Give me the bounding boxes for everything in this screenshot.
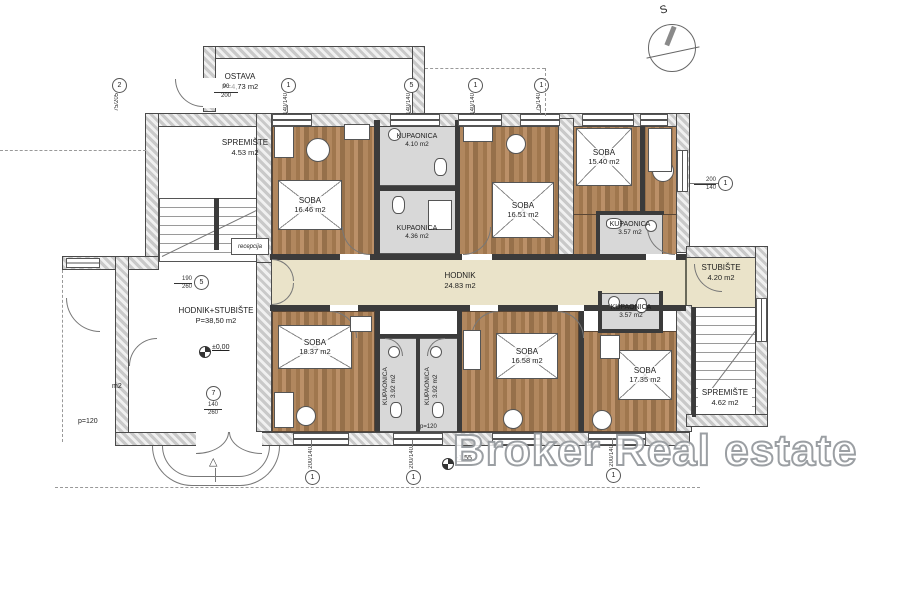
mark-num: 7	[212, 390, 216, 397]
room-label-kup5: KUPAONICA 3.92 m2	[424, 348, 440, 424]
dimension-text: 75/140	[536, 93, 542, 111]
mark-num: 1	[724, 180, 728, 187]
door-opening-soba3	[646, 254, 676, 260]
window	[293, 433, 349, 445]
room-area-soba1: 16.46 m2	[292, 205, 327, 214]
dimension-text: 200/140	[609, 445, 615, 467]
room-label-kup2: KUPAONICA 4.36 m2	[380, 224, 454, 242]
dimension-text: 140/140	[470, 93, 476, 115]
kup5-name: KUPAONICA	[424, 348, 432, 424]
floor-plan: SOBA 16.46 m2 SOBA 16.51 m2 SOBA 15.40 m…	[0, 0, 900, 600]
dim-h: 260	[204, 409, 222, 417]
kup1-name: KUPAONICA	[380, 132, 454, 141]
kup5-area: 3.92 m2	[432, 348, 440, 424]
stair-spine-left	[214, 198, 219, 250]
door-arc-hodnik-west	[129, 338, 157, 366]
toilet	[392, 196, 405, 214]
spremiste-l-name: SPREMIŠTE	[190, 138, 300, 148]
mark-num: 2	[118, 82, 122, 89]
kup6-name: KUPAONICA	[600, 303, 662, 312]
wood-floor-soba3-strip	[573, 214, 597, 257]
partition-kup-soba2	[455, 120, 460, 256]
window	[492, 433, 542, 445]
hodnik-area: 24.83 m2	[400, 281, 520, 291]
table-round	[296, 406, 316, 426]
wall-right-lower	[676, 305, 692, 432]
wall-left-lower	[115, 256, 129, 446]
window	[588, 433, 646, 445]
wall-soba2-soba3	[558, 118, 574, 258]
dimension-text: 140/140	[406, 93, 412, 115]
dimension-text: 200/140	[409, 447, 415, 469]
mark-num: 5	[410, 82, 414, 89]
wall-tower-bottom	[686, 414, 768, 427]
wardrobe	[463, 126, 493, 142]
entrance-marker-stem	[215, 468, 216, 482]
mark-num: 5	[200, 279, 204, 286]
bed-soba4: SOBA 18.37 m2	[278, 325, 352, 369]
window	[66, 258, 100, 268]
room-area-soba4: 18.37 m2	[297, 347, 332, 356]
room-label-kup4: KUPAONICA 3.92 m2	[382, 348, 398, 424]
level-symbol	[442, 458, 454, 470]
leader-line	[540, 105, 541, 114]
room-label-soba6: SOBA	[632, 366, 658, 376]
partition-kup45-top	[379, 334, 457, 338]
dim-h: 260	[174, 283, 192, 291]
door-dim-ostava: 90 200	[214, 84, 238, 101]
dim-h: 140	[694, 184, 716, 192]
wardrobe	[463, 330, 481, 370]
mark-num: 1	[287, 82, 291, 89]
door-dim-h: 200	[214, 92, 238, 101]
table-round	[503, 409, 523, 429]
window	[393, 433, 443, 445]
mark-num: 1	[540, 82, 544, 89]
window	[272, 114, 312, 126]
dimension-mark-circle: 1	[718, 176, 733, 191]
mark-num: 1	[412, 474, 416, 481]
level-text-minus: -1,55	[456, 455, 472, 462]
door-opening-soba4	[330, 305, 358, 311]
wardrobe	[648, 128, 672, 172]
leader-line	[412, 440, 413, 447]
leader-line	[690, 183, 718, 184]
dashed-line	[545, 68, 546, 116]
table-round	[592, 410, 612, 430]
kup2-area: 4.36 m2	[380, 233, 454, 241]
leader-line	[311, 440, 312, 447]
dashed-property-line	[55, 487, 700, 488]
partition-soba4-kup	[375, 311, 380, 432]
room-label-kup1: KUPAONICA 4.10 m2	[380, 132, 454, 150]
dimension-mark-circle: 7	[206, 386, 221, 401]
stubiste-area: 4.20 m2	[690, 273, 752, 283]
dimension-text: 200 140	[694, 177, 716, 192]
dimension-text: 140 260	[204, 402, 222, 417]
dashed-line	[425, 68, 545, 69]
window	[458, 114, 502, 126]
dimension-mark-circle: 5	[404, 78, 419, 93]
partition-kup6-bottom	[598, 329, 662, 333]
mark-num: 1	[474, 82, 478, 89]
dimension-mark-circle: 5	[194, 275, 209, 290]
reception-desk: recepcija	[231, 238, 269, 255]
partition-kup1-kup2	[379, 186, 455, 191]
level-text-zero: ±0,00	[212, 344, 229, 351]
dimension-mark-circle: 2	[112, 78, 127, 93]
room-label-kup3: KUPAONICA 3.57 m2	[598, 220, 662, 238]
window	[677, 150, 688, 192]
door-dim-w: 90	[214, 84, 238, 92]
door-opening-soba5	[470, 305, 498, 311]
dimension-text: 140/140	[283, 93, 289, 115]
room-label-kup6: KUPAONICA 3.57 m2	[600, 303, 662, 321]
partition-kup-soba5	[457, 311, 462, 432]
kup3-name: KUPAONICA	[598, 220, 662, 229]
spremiste-r-name: SPREMIŠTE	[698, 388, 752, 398]
room-label-soba4: SOBA	[302, 338, 328, 348]
spremiste-r-area: 4.62 m2	[698, 398, 752, 408]
kup6-area: 3.57 m2	[600, 312, 662, 320]
dimension-mark-circle: 1	[305, 470, 320, 485]
dim-w: 140	[204, 402, 222, 409]
window	[640, 114, 668, 126]
dimension-text: 75/205	[114, 93, 120, 111]
room-area-soba5: 16.58 m2	[509, 356, 544, 365]
north-arrow: S	[642, 4, 706, 76]
bed-soba3: SOBA 15.40 m2	[576, 128, 632, 186]
dimension-mark-circle: 1	[406, 470, 421, 485]
parapet-note-left: p=120	[78, 418, 98, 425]
table-round	[306, 138, 330, 162]
hodnik-name: HODNIK	[400, 271, 520, 281]
leader-line	[410, 105, 411, 114]
room-label-spremiste-right: SPREMIŠTE 4.62 m2	[698, 388, 752, 408]
dimension-text: 200/140	[308, 447, 314, 469]
kup4-name: KUPAONICA	[382, 348, 390, 424]
partition-soba3-closet	[640, 120, 645, 213]
hodnik-stubiste-name: HODNIK+STUBIŠTE	[155, 306, 277, 316]
dashed-line	[62, 270, 63, 442]
room-area-soba6: 17.35 m2	[627, 375, 662, 384]
bed-soba1: SOBA 16.46 m2	[278, 180, 342, 230]
leader-line	[474, 105, 475, 114]
hodnik-stubiste-area: P=38,50 m2	[155, 316, 277, 326]
stair-spine-right	[692, 307, 696, 417]
wall-hodnik-soba4	[256, 262, 272, 432]
dashed-line	[0, 150, 146, 151]
wall-left-upper	[145, 113, 159, 265]
door-opening-soba1	[340, 254, 370, 260]
room-area-soba3: 15.40 m2	[586, 157, 621, 166]
bed-soba5: SOBA 16.58 m2	[496, 333, 558, 379]
entrance-marker-icon: △	[209, 455, 217, 468]
bed-soba2: SOBA 16.51 m2	[492, 182, 554, 238]
dimension-mark-circle: 1	[281, 78, 296, 93]
room-area-soba2: 16.51 m2	[505, 210, 540, 219]
room-label-spremiste-left: SPREMIŠTE 4.53 m2	[190, 138, 300, 158]
kup1-area: 4.10 m2	[380, 141, 454, 149]
dimension-text: 190 260	[174, 276, 192, 291]
wardrobe	[274, 392, 294, 428]
room-label-soba3: SOBA	[591, 148, 617, 158]
partition-kup3-top	[596, 211, 664, 215]
room-label-soba1: SOBA	[297, 196, 323, 206]
dimension-mark-circle: 1	[534, 78, 549, 93]
dimension-mark-circle: 1	[606, 468, 621, 483]
room-label-soba5: SOBA	[514, 347, 540, 357]
door-opening-soba6	[558, 305, 584, 311]
stubiste-name: STUBIŠTE	[690, 263, 752, 273]
room-label-recepcija: recepcija	[238, 244, 262, 250]
room-label-stubiste: STUBIŠTE 4.20 m2	[690, 263, 752, 283]
mark-num: 1	[311, 474, 315, 481]
mark-num: 1	[612, 472, 616, 479]
north-label: S	[659, 3, 669, 16]
window	[756, 298, 767, 342]
table-round	[506, 134, 526, 154]
window	[582, 114, 634, 126]
toilet	[434, 158, 447, 176]
kup2-name: KUPAONICA	[380, 224, 454, 233]
cutoff-label-fragment: m2	[112, 383, 122, 390]
door-opening-soba2	[462, 254, 492, 260]
kup3-area: 3.57 m2	[598, 229, 662, 237]
door-arc-porch	[66, 298, 100, 332]
dimension-mark-circle: 1	[468, 78, 483, 93]
window	[390, 114, 440, 126]
dim-w: 190	[174, 276, 192, 283]
parapet-note-mid: p=120	[420, 424, 437, 430]
wardrobe	[344, 124, 370, 140]
kup4-area: 3.92 m2	[390, 348, 398, 424]
wardrobe	[350, 316, 372, 332]
level-symbol	[199, 346, 211, 358]
bed-soba6: SOBA 17.35 m2	[618, 350, 672, 400]
spremiste-l-area: 4.53 m2	[190, 148, 300, 158]
room-label-hodnik: HODNIK 24.83 m2	[400, 271, 520, 291]
wall-ostava-top	[203, 46, 425, 59]
room-label-soba2: SOBA	[510, 201, 536, 211]
window	[520, 114, 560, 126]
wardrobe	[600, 335, 620, 359]
leader-line	[612, 438, 613, 445]
room-label-hodnik-stubiste: HODNIK+STUBIŠTE P=38,50 m2	[155, 306, 277, 326]
leader-line	[287, 105, 288, 114]
partition-kup4-kup5	[416, 336, 420, 432]
